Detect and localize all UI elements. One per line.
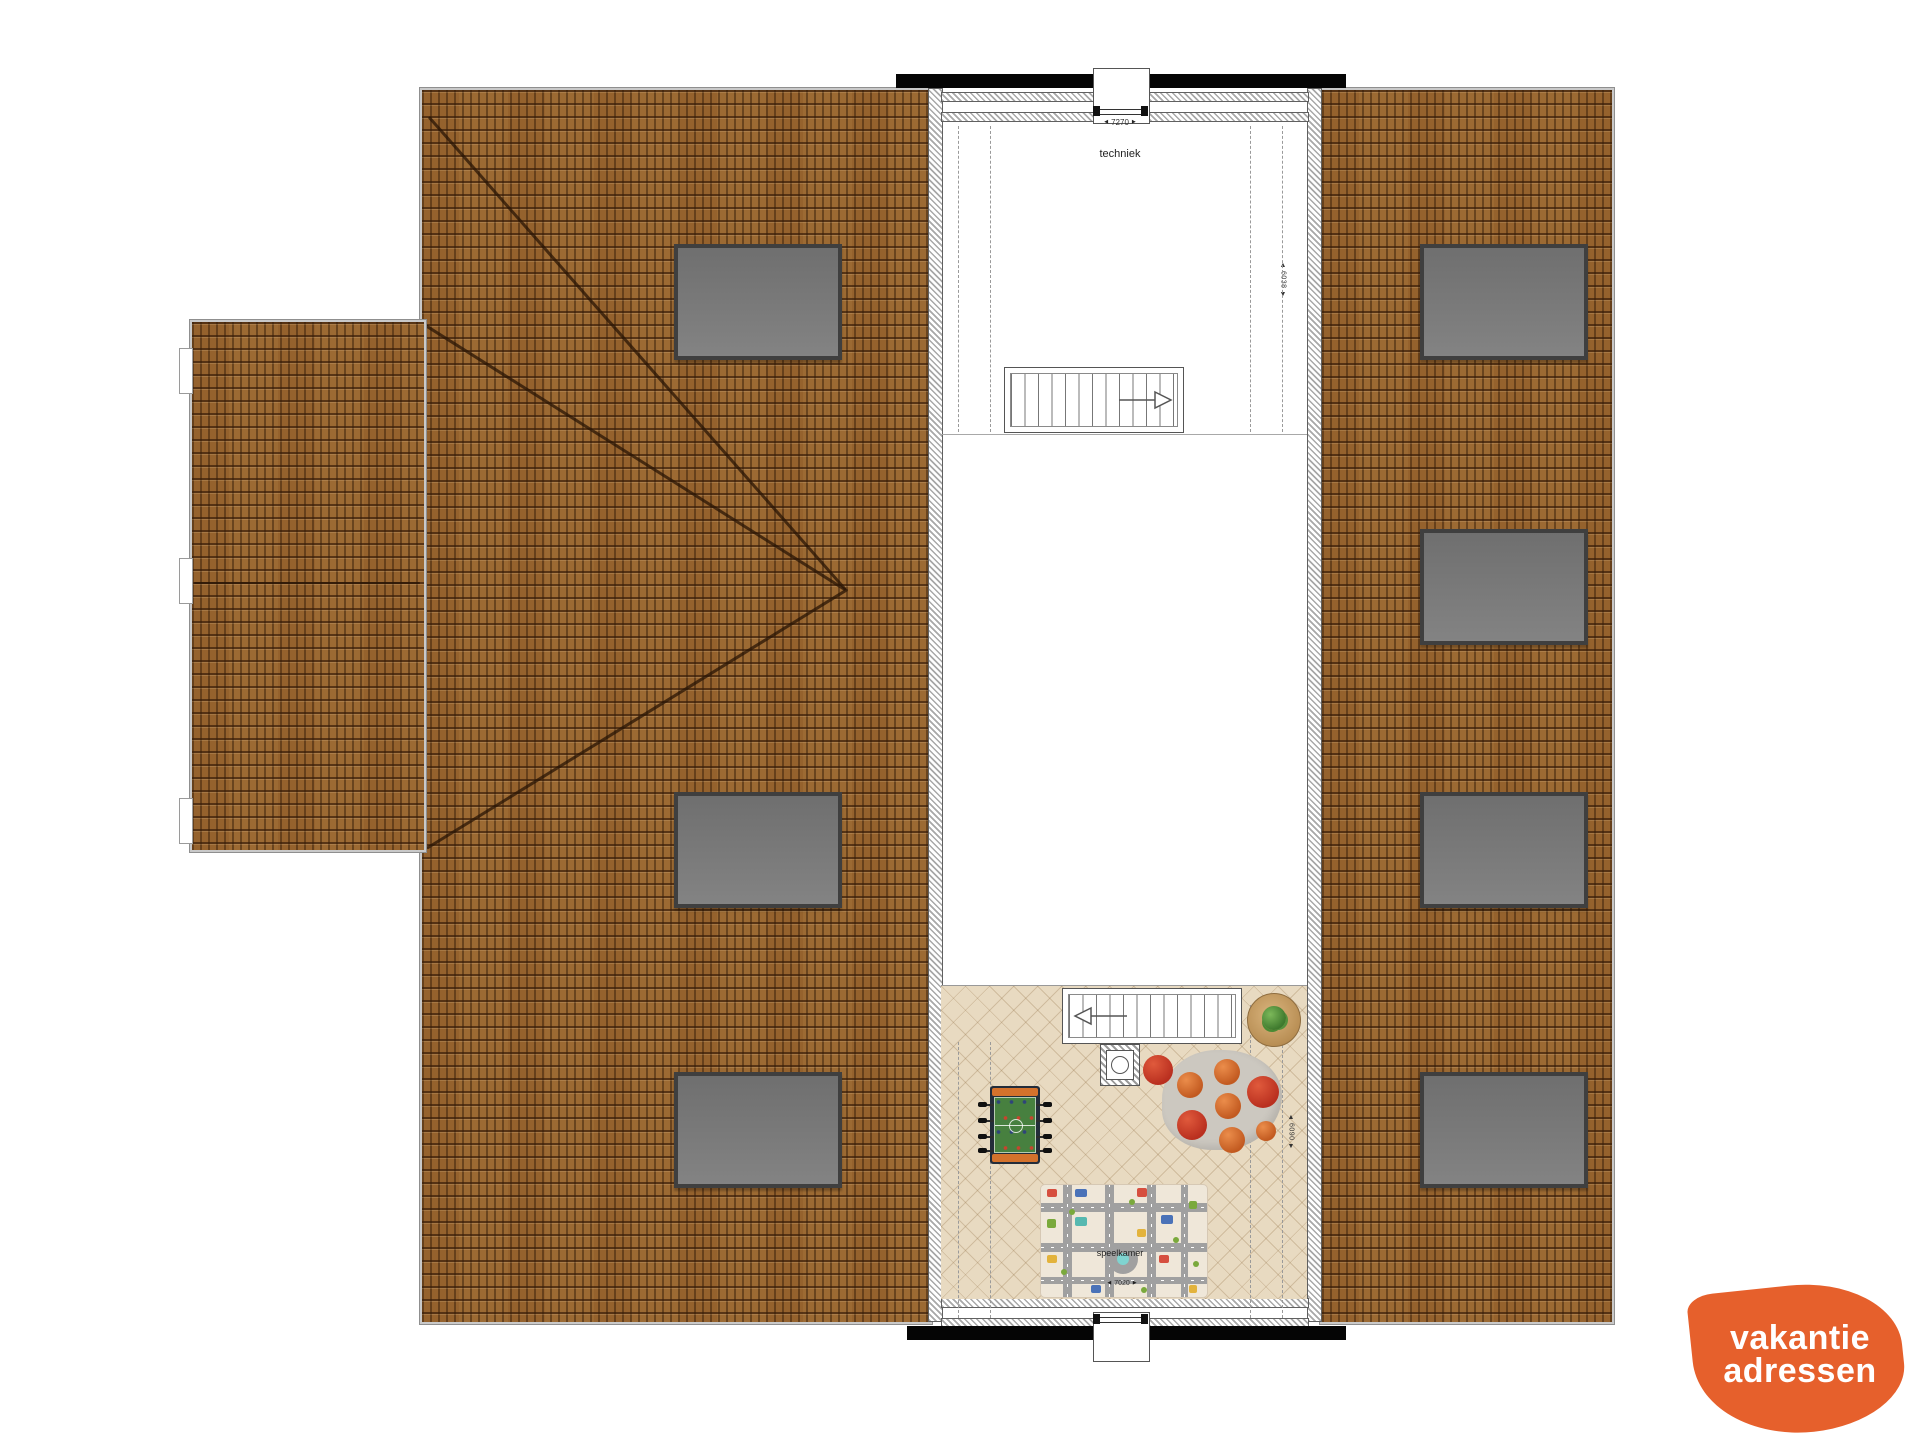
- knee-wall-dashed-line: [958, 126, 959, 432]
- toy-tree: [1173, 1237, 1179, 1243]
- bean-bag: [1177, 1072, 1203, 1098]
- logo-text: vakantie adressen: [1705, 1322, 1895, 1388]
- field-center-circle: [1009, 1119, 1023, 1133]
- chimney-duct: [1100, 1044, 1140, 1086]
- window-symbol: [1097, 1317, 1145, 1323]
- stair-direction-arrow-icon: [1119, 388, 1175, 412]
- dim-arrow-up-icon: ▲: [1280, 262, 1287, 269]
- bean-bag: [1256, 1121, 1276, 1141]
- staircase-bottom: [1062, 988, 1242, 1044]
- chimney-inner: [1106, 1050, 1134, 1080]
- toy-building: [1189, 1201, 1197, 1209]
- toy-building: [1047, 1255, 1057, 1263]
- knee-wall-dashed-line: [1250, 1005, 1251, 1318]
- dim-arrow-up-icon: ▲: [1288, 1114, 1295, 1121]
- gutter-mark: [179, 558, 193, 604]
- roof-valley-line: [424, 324, 846, 591]
- foosball-field: [994, 1097, 1036, 1153]
- roof-window: [674, 1072, 842, 1188]
- play-mat-road: [1063, 1185, 1072, 1297]
- window-frame-cap: [1093, 1314, 1100, 1324]
- toy-building: [1161, 1215, 1173, 1224]
- window-symbol: [1097, 109, 1145, 115]
- floor-plan-canvas: ◀ 7270 ▶ techniek ▲ 6038 ▼: [0, 0, 1920, 1440]
- dim-arrow-down-icon: ▼: [1280, 291, 1287, 298]
- bean-bag: [1214, 1059, 1240, 1085]
- dimension-value: 7020: [1114, 1280, 1130, 1287]
- toy-building: [1047, 1189, 1057, 1197]
- foosball-end-orange: [992, 1088, 1038, 1096]
- bean-bag: [1143, 1055, 1173, 1085]
- logo-line1: vakantie: [1705, 1322, 1895, 1355]
- toy-tree: [1129, 1199, 1135, 1205]
- toy-building: [1189, 1285, 1197, 1293]
- window-frame-cap: [1141, 1314, 1148, 1324]
- techniek-room-divider: [941, 434, 1307, 435]
- roof-window: [674, 244, 842, 360]
- bean-bag: [1219, 1127, 1245, 1153]
- dimension-value: 6038: [1280, 271, 1287, 289]
- dimension-value: 6090: [1288, 1123, 1295, 1141]
- roof-window: [674, 792, 842, 908]
- toy-building: [1047, 1219, 1056, 1228]
- gutter-mark: [179, 348, 193, 394]
- dimension-bottom-width: ◀ 7020 ▶: [1085, 1278, 1159, 1288]
- foosball-end-orange: [992, 1154, 1038, 1162]
- foosball-table: [990, 1086, 1040, 1164]
- gutter-mark: [179, 798, 193, 844]
- left-roof-wing: [190, 320, 426, 852]
- knee-wall-dashed-line: [990, 1042, 991, 1318]
- dimension-value: 7270: [1111, 118, 1129, 127]
- dim-arrow-right-icon: ▶: [1132, 120, 1136, 125]
- room-label-techniek: techniek: [1070, 148, 1170, 160]
- knee-wall-dashed-line: [958, 1042, 959, 1318]
- dim-arrow-left-icon: ◀: [1104, 120, 1108, 125]
- play-mat-road: [1181, 1185, 1188, 1297]
- dimension-techniek-depth: ▲ 6038 ▼: [1276, 248, 1290, 312]
- toy-building: [1137, 1188, 1147, 1197]
- knee-wall-dashed-line: [1282, 1005, 1283, 1318]
- dim-arrow-left-icon: ◀: [1107, 1281, 1111, 1286]
- roof-window: [1420, 529, 1588, 645]
- knee-wall-dashed-line: [990, 126, 991, 432]
- window-frame-cap: [1141, 106, 1148, 116]
- logo-line2: adressen: [1705, 1355, 1895, 1388]
- knee-wall-dashed-line: [1250, 126, 1251, 432]
- bean-bag: [1177, 1110, 1207, 1140]
- wall-bottom-inner: [941, 1298, 1309, 1308]
- dim-arrow-down-icon: ▼: [1288, 1143, 1295, 1150]
- bean-bag: [1247, 1076, 1279, 1108]
- duct-circle: [1111, 1056, 1129, 1074]
- dim-arrow-right-icon: ▶: [1133, 1281, 1137, 1286]
- toy-building: [1137, 1229, 1146, 1237]
- staircase-top: [1004, 367, 1184, 433]
- stair-direction-arrow-icon: [1071, 1004, 1127, 1028]
- roof-window: [1420, 792, 1588, 908]
- window-frame-cap: [1093, 106, 1100, 116]
- roof-window: [1420, 244, 1588, 360]
- plant: [1262, 1006, 1286, 1030]
- dimension-top-width: ◀ 7270 ▶: [1080, 116, 1160, 128]
- bean-bag: [1215, 1093, 1241, 1119]
- dimension-speelkamer-depth: ▲ 6090 ▼: [1284, 1100, 1298, 1164]
- right-roof: [1320, 88, 1614, 1324]
- knee-wall-dashed-line: [1282, 126, 1283, 432]
- toy-tree: [1061, 1269, 1067, 1275]
- toy-building: [1075, 1217, 1087, 1226]
- left-roof: [420, 88, 932, 1324]
- wall-right: [1307, 88, 1322, 1322]
- toy-tree: [1193, 1261, 1199, 1267]
- roof-window: [1420, 1072, 1588, 1188]
- room-label-speelkamer: speelkamer: [1070, 1248, 1170, 1258]
- toy-building: [1075, 1189, 1087, 1197]
- roof-ridge-line: [194, 582, 420, 584]
- toy-tree: [1069, 1209, 1075, 1215]
